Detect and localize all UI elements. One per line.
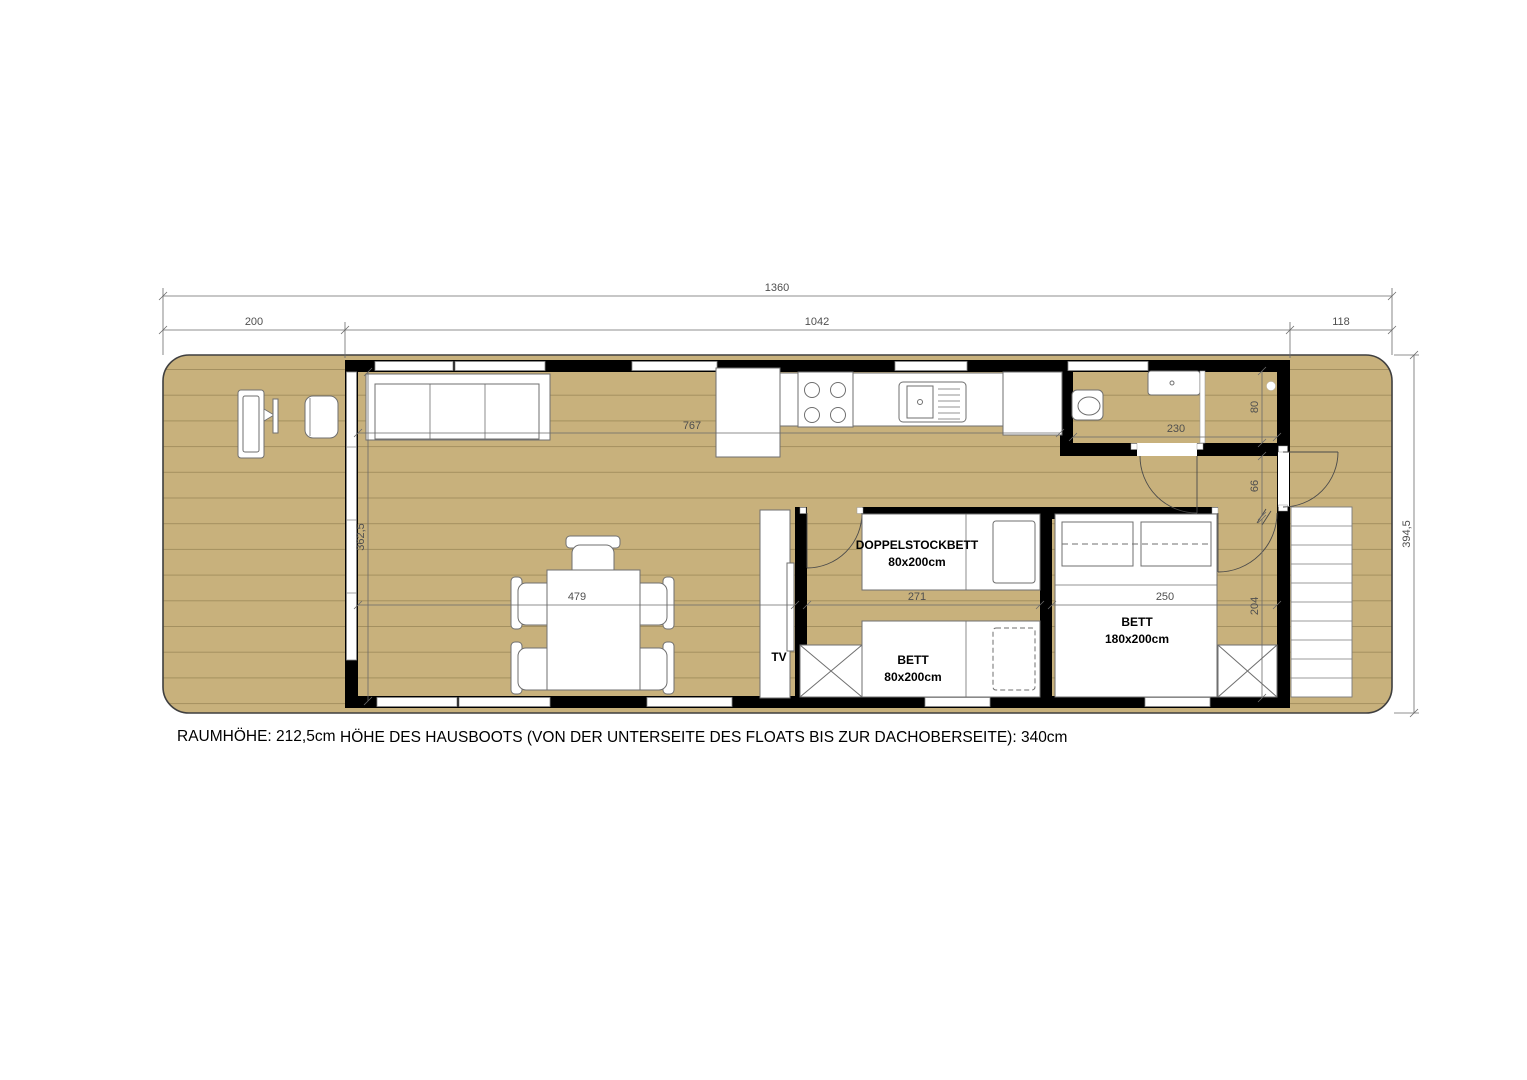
dim-hall-label: 66: [1249, 480, 1261, 492]
houseboat-floorplan: TV DOPPELSTOCKBETT 80x200cm: [0, 0, 1527, 1080]
dim-bath-depth-label: 80: [1249, 401, 1261, 413]
window-bottom-1: [377, 698, 457, 707]
window-top-3: [632, 362, 717, 371]
double-bed-size-label: 180x200cm: [1105, 632, 1169, 646]
annotations: RAUMHÖHE: 212,5cm HÖHE DES HAUSBOOTS (VO…: [177, 727, 1067, 746]
double-bed-icon: [1055, 514, 1217, 697]
door-jamb: [1279, 505, 1288, 511]
window-bottom-3: [647, 698, 732, 707]
door-jamb: [1212, 508, 1218, 514]
window-top-2: [455, 362, 545, 371]
wall-right: [1277, 360, 1290, 708]
bunk-bed-label: DOPPELSTOCKBETT: [856, 538, 979, 552]
dining-table-icon: [547, 570, 640, 690]
bunk-bed-size-label: 80x200cm: [888, 555, 945, 569]
double-bed-label: BETT: [1121, 615, 1153, 629]
bunk-bed-icon: [862, 514, 1040, 590]
floorplan-page: TV DOPPELSTOCKBETT 80x200cm: [0, 0, 1527, 1080]
dim-cabin-label: 1042: [805, 316, 829, 328]
dim-living-width-label: 479: [568, 591, 586, 603]
tv-label: TV: [771, 650, 786, 664]
dim-reardeck-label: 118: [1332, 316, 1350, 328]
window-top-bath: [1068, 362, 1148, 371]
bath-door-opening: [1137, 443, 1197, 456]
room-height-note: RAUMHÖHE: 212,5cm: [177, 727, 335, 745]
dim-bunkroom-label: 271: [908, 591, 926, 603]
dim-living-length-label: 767: [683, 420, 701, 432]
light-fixture-icon: [1267, 382, 1276, 391]
window-left-glassfront: [347, 372, 357, 660]
door-jamb: [800, 508, 806, 514]
window-top-kitchen: [895, 362, 967, 371]
window-bottom-2: [459, 698, 550, 707]
window-bottom-bedroom: [1145, 698, 1210, 707]
dim-total-label: 1360: [765, 282, 789, 294]
door-jamb: [1279, 446, 1288, 452]
kitchen-cabinet-tall: [716, 368, 780, 457]
dim-interiorwidth-label: 362,5: [355, 523, 367, 551]
wall-bunk-bedroom: [1040, 507, 1052, 696]
dim-beam-label: 394,5: [1401, 520, 1413, 548]
steering-console-icon: [238, 390, 264, 458]
dim-frontdeck-label: 200: [245, 316, 263, 328]
shower-partition: [1200, 371, 1205, 443]
door-jamb: [1197, 444, 1203, 450]
fridge-cabinet-icon: [1003, 372, 1062, 435]
entrance-opening: [1278, 452, 1289, 507]
door-jamb: [857, 508, 863, 514]
window-top-1: [375, 362, 453, 371]
single-bed-icon: [862, 621, 1040, 697]
window-bottom-bunkroom: [925, 698, 990, 707]
boat-height-note: HÖHE DES HAUSBOOTS (VON DER UNTERSEITE D…: [340, 728, 1067, 746]
single-bed-label: BETT: [897, 653, 929, 667]
tv-sideboard-icon: [760, 510, 790, 698]
tiller-bar-icon: [273, 399, 278, 433]
single-bed-size-label: 80x200cm: [884, 670, 941, 684]
dim-bedroom-label: 250: [1156, 591, 1174, 603]
toilet-icon: [1072, 390, 1103, 420]
door-jamb: [1131, 444, 1137, 450]
dim-bedroom-depth-label: 204: [1249, 597, 1261, 615]
dim-bath-width-label: 230: [1167, 423, 1185, 435]
